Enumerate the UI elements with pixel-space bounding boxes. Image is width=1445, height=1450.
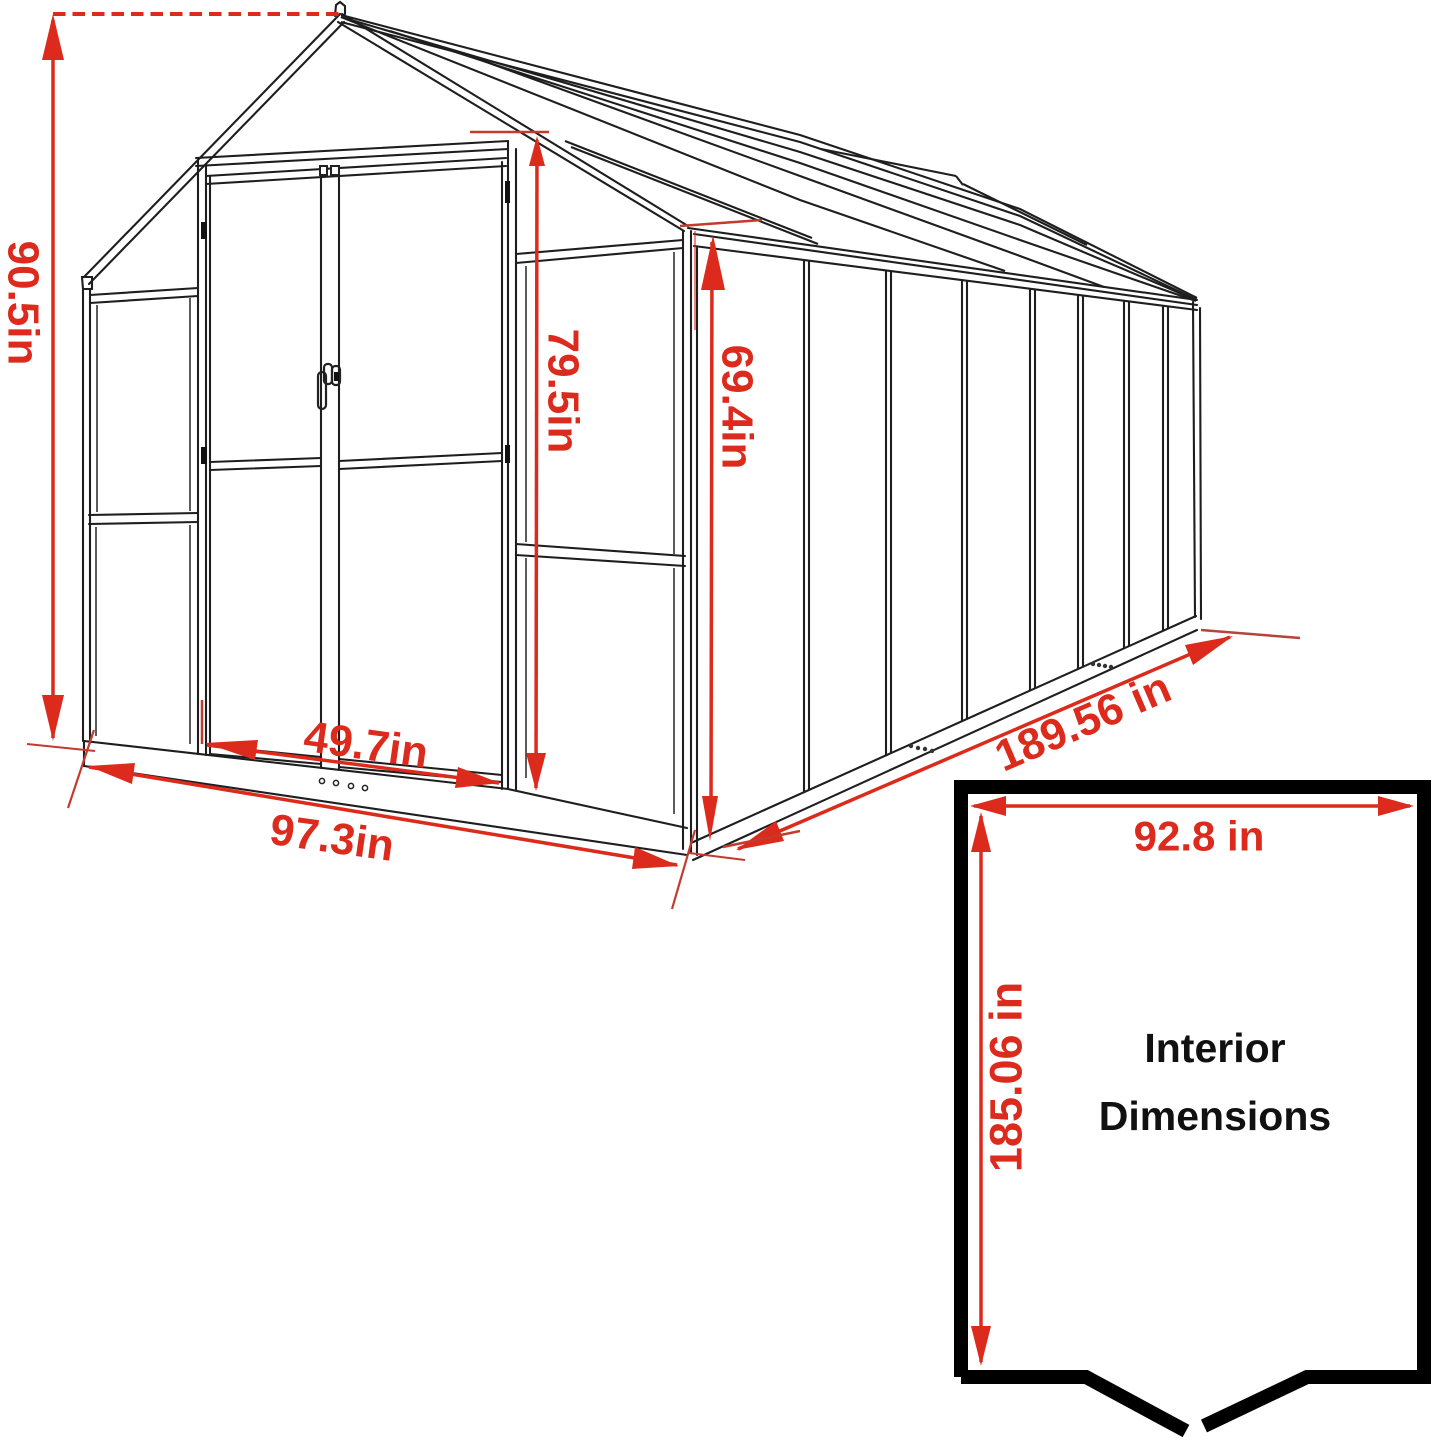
svg-text:Dimensions: Dimensions: [1099, 1093, 1331, 1139]
svg-text:69.4in: 69.4in: [713, 345, 762, 470]
svg-text:Interior: Interior: [1144, 1025, 1285, 1071]
svg-text:90.5in: 90.5in: [0, 241, 48, 366]
svg-text:79.5in: 79.5in: [539, 329, 588, 454]
svg-text:92.8 in: 92.8 in: [1134, 813, 1265, 860]
svg-text:185.06 in: 185.06 in: [981, 982, 1032, 1172]
